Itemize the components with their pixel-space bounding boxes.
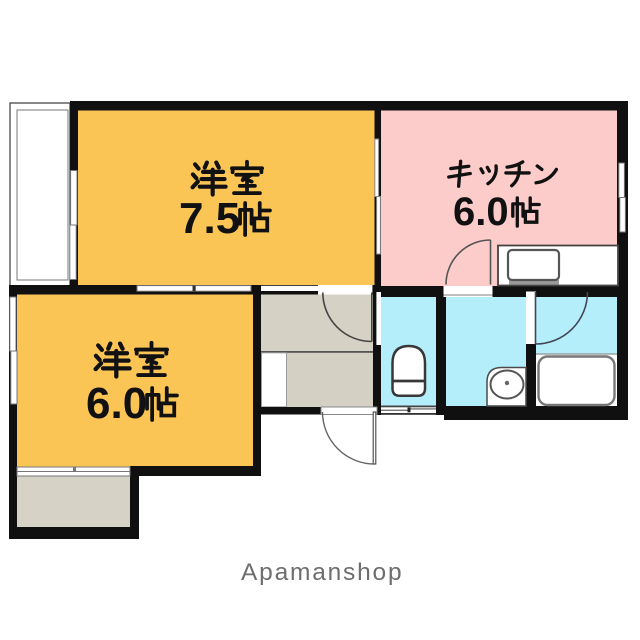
- svg-text:6.0: 6.0: [86, 379, 147, 428]
- svg-text:7.5: 7.5: [179, 194, 240, 243]
- svg-text:Apamanshop: Apamanshop: [241, 559, 403, 586]
- svg-text:6.0: 6.0: [453, 190, 509, 234]
